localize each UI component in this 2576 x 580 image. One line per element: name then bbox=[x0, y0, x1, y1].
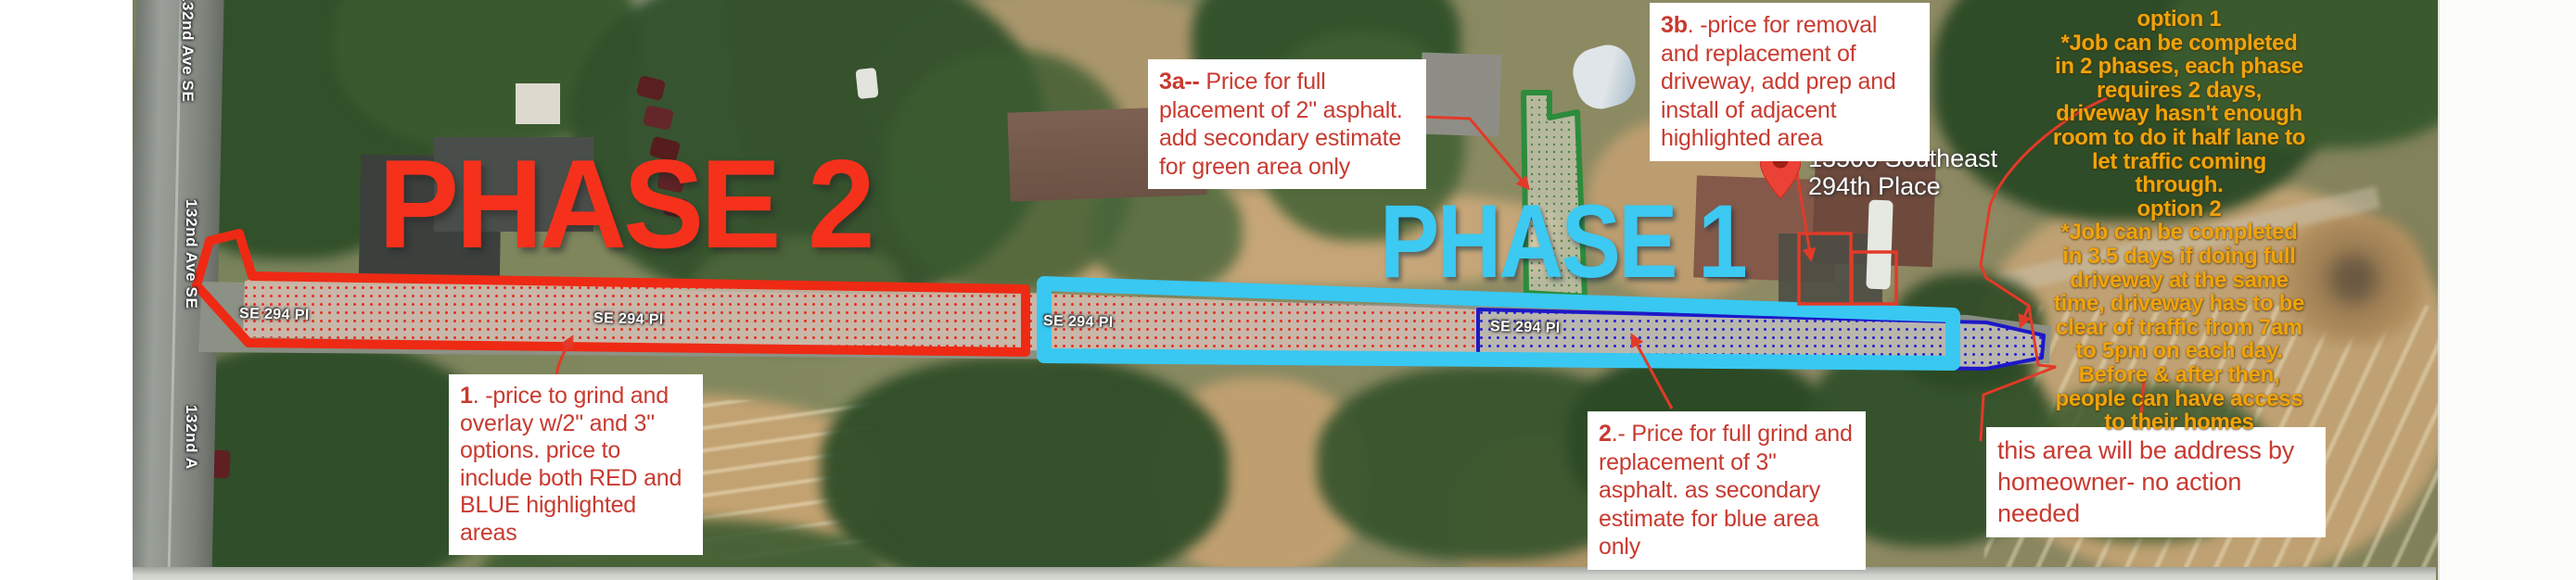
street-label-se294-4: SE 294 Pl bbox=[1490, 319, 1561, 337]
annotated-aerial-map: 132nd Ave SE 132nd Ave SE 132nd A SE 294… bbox=[0, 0, 2576, 580]
street-label-se294-1: SE 294 Pl bbox=[239, 306, 310, 324]
callout-1: 1. -price to grind and overlay w/2" and … bbox=[449, 374, 703, 555]
street-label-se294-2: SE 294 Pl bbox=[593, 310, 664, 329]
callout-3b-text: . -price for removal and replacement of … bbox=[1661, 12, 1896, 151]
callout-2-text: .- Price for full grind and replacement … bbox=[1599, 421, 1853, 560]
callout-3a-number: 3a-- bbox=[1159, 69, 1200, 95]
street-label-132nd-3: 132nd A bbox=[182, 405, 200, 470]
phase-1-title: PHASE 1 bbox=[1380, 190, 1745, 294]
leader-3a-to-green bbox=[1422, 117, 1528, 188]
callout-3a: 3a-- Price for full placement of 2" asph… bbox=[1148, 59, 1426, 189]
callout-homeowner: this area will be address by homeowner- … bbox=[1986, 427, 2326, 537]
callout-1-number: 1 bbox=[460, 383, 473, 409]
street-label-132nd-1: 132nd Ave SE bbox=[178, 0, 197, 102]
street-label-132nd-2: 132nd Ave SE bbox=[182, 199, 200, 309]
driveway-box-b bbox=[1852, 252, 1896, 304]
street-label-se294-3: SE 294 Pl bbox=[1043, 313, 1114, 332]
right-margin bbox=[2440, 0, 2576, 580]
callout-2-number: 2 bbox=[1599, 421, 1612, 447]
driveway-box-a bbox=[1799, 233, 1851, 304]
bottom-road-edge bbox=[133, 567, 2436, 580]
schedule-notes: option 1 *Job can be completed in 2 phas… bbox=[1973, 7, 2385, 435]
callout-homeowner-text: this area will be address by homeowner- … bbox=[1997, 436, 2294, 527]
map-right-edge bbox=[2438, 0, 2440, 580]
callout-1-text: . -price to grind and overlay w/2" and 3… bbox=[460, 383, 682, 546]
callout-2: 2.- Price for full grind and replacement… bbox=[1588, 411, 1866, 570]
phase-2-title: PHASE 2 bbox=[378, 141, 872, 267]
callout-3b: 3b. -price for removal and replacement o… bbox=[1650, 3, 1930, 161]
callout-3b-number: 3b bbox=[1661, 12, 1688, 38]
left-margin bbox=[0, 0, 133, 580]
